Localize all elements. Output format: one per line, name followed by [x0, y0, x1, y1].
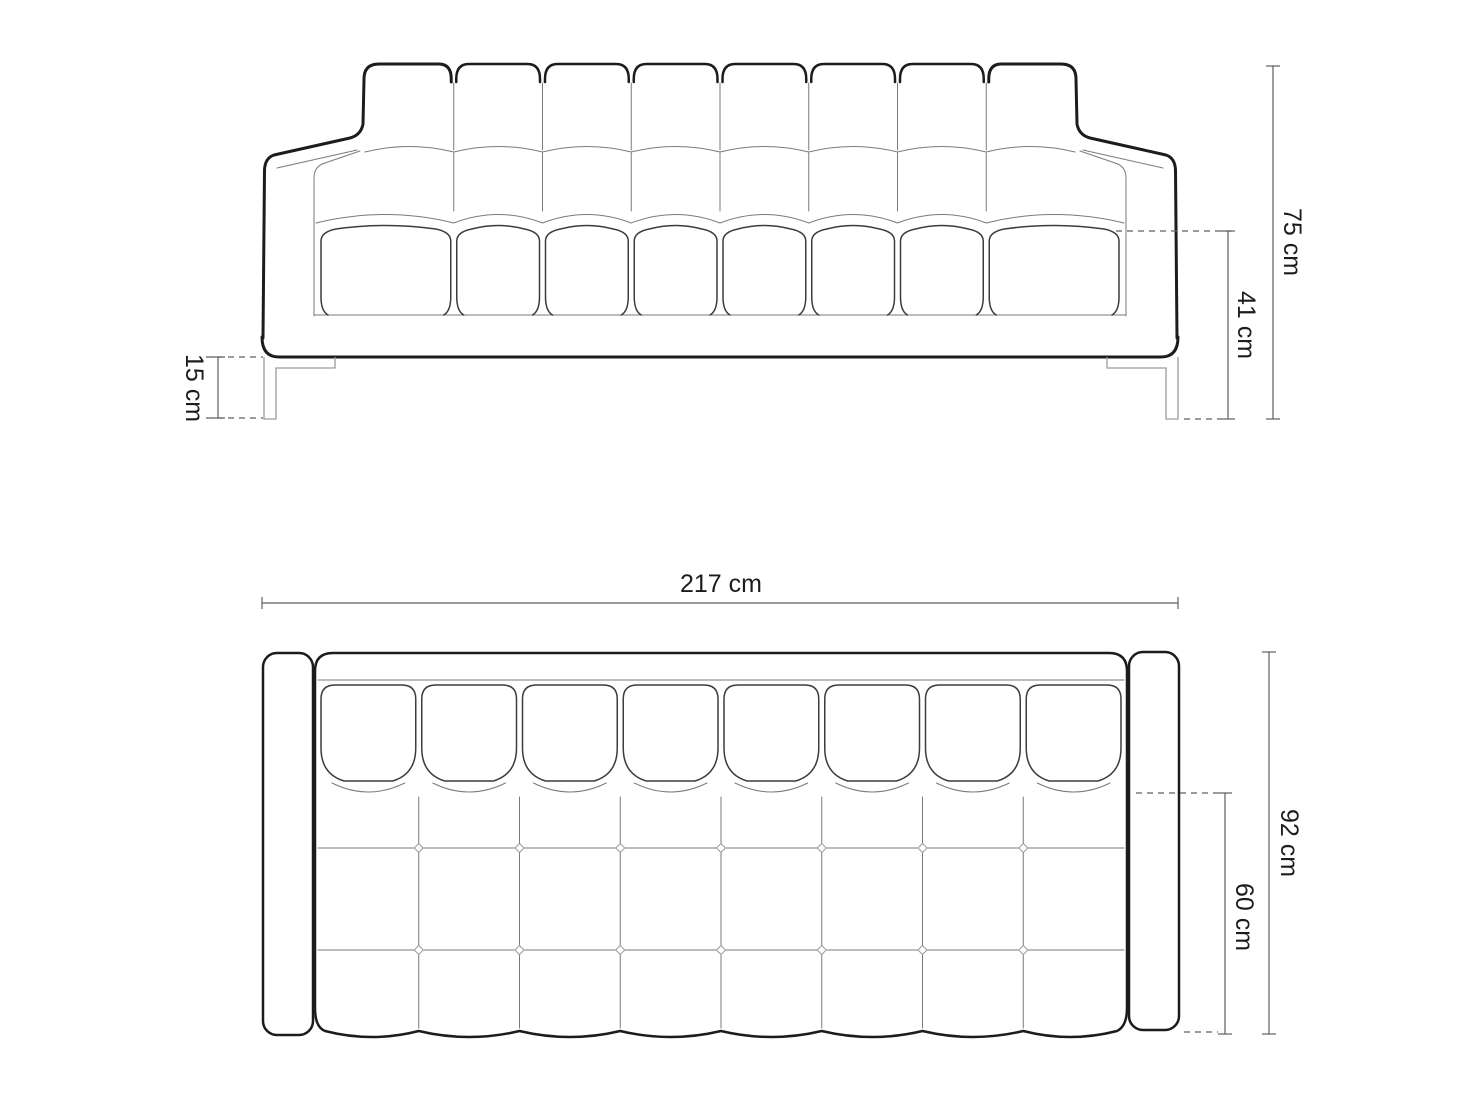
front-right-leg [1107, 357, 1178, 419]
top-back-cushion-front-curve [433, 783, 506, 792]
top-tufting-button [918, 844, 927, 853]
front-back-cushion-top [545, 64, 629, 82]
top-tufting-button [616, 946, 625, 955]
top-tufting-button [1019, 844, 1028, 853]
top-back-cushion [623, 685, 718, 781]
top-left-armrest [263, 653, 313, 1035]
top-right-armrest [1129, 652, 1179, 1030]
top-tufting-button [817, 844, 826, 853]
top-total-width-label: 217 cm [671, 570, 771, 598]
front-seat-cushion [321, 226, 451, 316]
front-seat-cushion [901, 226, 984, 316]
top-tufting-button [414, 946, 423, 955]
top-back-cushion-front-curve [534, 783, 607, 792]
front-back-cushion-top [900, 64, 984, 82]
top-tufting-button [717, 946, 726, 955]
top-tufting-button [515, 946, 524, 955]
top-back-cushion-front-curve [634, 783, 707, 792]
front-right-arm-outline [989, 64, 1177, 338]
top-back-cushion [422, 685, 517, 781]
top-back-cushion-front-curve [1037, 783, 1110, 792]
top-tufting-button [515, 844, 524, 853]
front-base-bottom-edge [262, 337, 1178, 357]
front-left-leg [264, 357, 335, 419]
top-back-cushion [321, 685, 416, 781]
top-tufting-button [717, 844, 726, 853]
diagram-canvas: 75 cm 41 cm 15 cm 217 cm 92 cm 60 cm [0, 0, 1475, 1106]
top-back-cushion-front-curve [937, 783, 1010, 792]
top-tufting-button [817, 946, 826, 955]
front-back-cushion-top [723, 64, 807, 82]
top-back-cushion-front-curve [836, 783, 909, 792]
front-seat-back-scallop-line [316, 215, 1124, 224]
top-back-cushion-front-curve [332, 783, 405, 792]
front-back-cushion-top [811, 64, 895, 82]
top-total-depth-label: 92 cm [1275, 798, 1303, 888]
top-tufting-button [1019, 946, 1028, 955]
front-back-cushion-top [456, 64, 540, 82]
top-back-cushion [926, 685, 1021, 781]
top-back-cushion [825, 685, 920, 781]
front-seat-cushion [457, 226, 540, 316]
top-tufting-button [414, 844, 423, 853]
front-view-drawing [206, 64, 1280, 1037]
top-seat-depth-label: 60 cm [1230, 872, 1258, 962]
front-seat-cushion [546, 226, 629, 316]
top-tufting-button [918, 946, 927, 955]
front-left-arm-outline [263, 64, 451, 338]
front-seat-cushion [634, 226, 717, 316]
top-back-cushion-front-curve [735, 783, 808, 792]
top-back-cushion [523, 685, 618, 781]
front-leg-height-label: 15 cm [180, 343, 208, 433]
front-seat-cushion [723, 226, 806, 316]
front-seat-cushion [812, 226, 895, 316]
front-back-cushion-top [634, 64, 718, 82]
top-back-cushion [724, 685, 819, 781]
front-seat-cushion [989, 226, 1119, 316]
top-tufting-button [616, 844, 625, 853]
front-total-height-label: 75 cm [1278, 197, 1306, 287]
top-back-cushion [1026, 685, 1121, 781]
front-seat-height-label: 41 cm [1232, 280, 1260, 370]
